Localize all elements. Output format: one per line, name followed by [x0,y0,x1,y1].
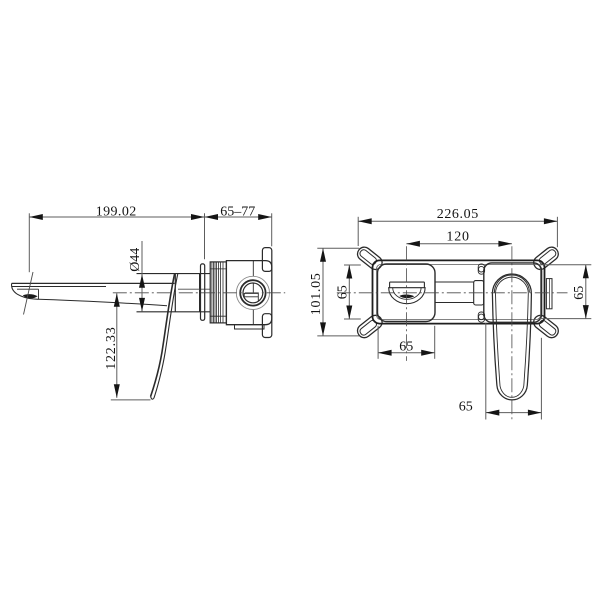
svg-text:65: 65 [399,339,413,354]
svg-text:65: 65 [572,286,587,300]
svg-text:199.02: 199.02 [96,205,137,220]
svg-text:226.05: 226.05 [437,207,479,222]
svg-text:65–77: 65–77 [220,205,255,220]
svg-text:65: 65 [459,399,473,414]
svg-text:101.05: 101.05 [309,272,324,315]
svg-text:122.33: 122.33 [104,326,119,369]
svg-text:Ø44: Ø44 [128,248,143,272]
svg-text:120: 120 [446,230,469,245]
svg-text:65: 65 [336,285,351,299]
